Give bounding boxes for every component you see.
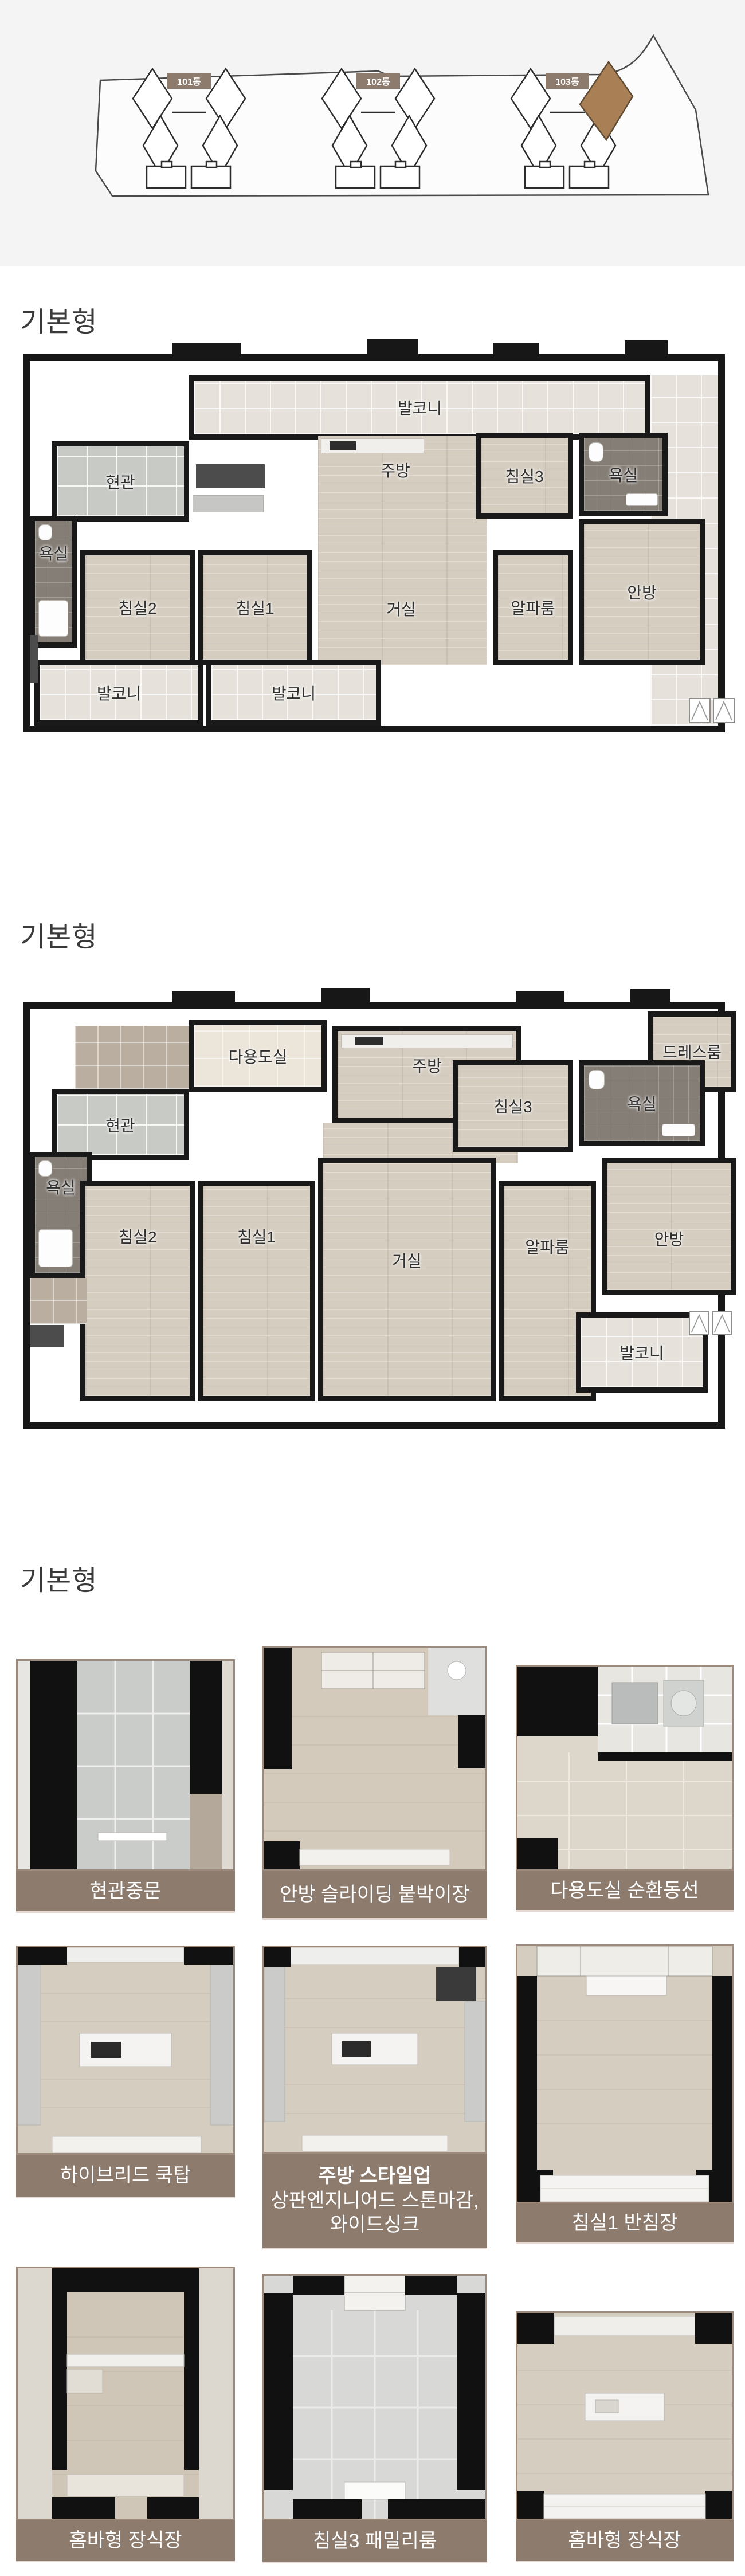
room-label: 현관	[105, 470, 135, 493]
plan1-bath-master: 욕실	[579, 433, 668, 516]
duct	[30, 1325, 64, 1347]
washbasin	[38, 1160, 52, 1177]
section-title-2: 기본형	[20, 914, 97, 954]
toilet	[589, 1070, 605, 1089]
gallery-tile-bedroom1-closet: 침실1 반침장	[516, 1944, 734, 2242]
tile-caption: 안방 슬라이딩 붙박이장	[262, 1871, 487, 1918]
building-label-102: 102동	[356, 73, 400, 89]
room-label: 침실2	[118, 596, 156, 619]
tile-caption-line2: 상판엔지니어드 스톤마감,	[262, 2189, 487, 2213]
sink-counter	[626, 493, 658, 506]
tile-caption-text: 현관중문	[16, 1879, 235, 1904]
tile-caption-text: 홈바형 장식장	[516, 2528, 734, 2553]
plan2-bath-master: 욕실	[579, 1060, 705, 1146]
room-label: 거실	[392, 1249, 422, 1272]
sink-counter	[662, 1124, 695, 1136]
tile-caption-line3: 와이드싱크	[262, 2213, 487, 2237]
room-label: 다용도실	[228, 1045, 287, 1068]
plan2-bedroom2: 침실2	[80, 1181, 195, 1401]
room-label: 욕실	[609, 463, 638, 486]
plan1-bedroom3: 침실3	[476, 433, 573, 519]
cabinet	[193, 495, 264, 512]
room-label: 욕실	[627, 1092, 657, 1115]
plan1-wall-jut	[367, 339, 418, 355]
site-plan: 101동 102동 103동	[69, 16, 739, 245]
plan2-entrance: 현관	[52, 1089, 189, 1160]
tile-caption-text: 침실1 반침장	[516, 2211, 734, 2236]
room-label: 침실3	[493, 1095, 532, 1118]
tile-image-hybrid-cooktop	[16, 1946, 235, 2155]
tile-image-homebar-left	[16, 2267, 235, 2520]
building-label-102-text: 102동	[366, 77, 390, 87]
room-label: 발코니	[398, 396, 442, 419]
window-symbol	[689, 698, 711, 723]
plan1-master-bedroom: 안방	[579, 519, 705, 665]
gallery-tile-homebar-left: 홈바형 장식장	[16, 2267, 235, 2561]
plan1-bath-common: 욕실	[30, 516, 77, 648]
plan1-alpha-room: 알파룸	[493, 550, 573, 665]
room-label: 현관	[105, 1113, 135, 1136]
room-label: 욕실	[39, 542, 69, 564]
tile-image-bedroom3-familyroom	[262, 2274, 487, 2520]
tile-image-entrance-door	[16, 1659, 235, 1871]
plan2-elevator-hall	[74, 1026, 189, 1089]
tile-caption-text: 침실3 패밀리룸	[262, 2529, 487, 2554]
room-label: 안방	[654, 1227, 684, 1250]
section-title-1: 기본형	[20, 299, 97, 339]
room-label: 주방	[381, 458, 410, 481]
plan1-wall-jut	[172, 343, 241, 355]
cooktop	[330, 441, 356, 450]
tile-caption: 주방 스타일업 상판엔지니어드 스톤마감, 와이드싱크	[262, 2154, 487, 2248]
plan1-balcony-bottom-left: 발코니	[34, 660, 203, 726]
tile-image-master-closet	[262, 1646, 487, 1871]
room-label: 침실3	[505, 464, 543, 487]
tile-caption: 하이브리드 쿡탑	[16, 2155, 235, 2197]
room-label: 드레스룸	[662, 1040, 722, 1063]
tile-caption: 홈바형 장식장	[16, 2520, 235, 2561]
tile-image-bedroom1-closet	[516, 1944, 734, 2203]
plan2-utility-corner	[30, 1278, 87, 1324]
window-symbol	[713, 698, 735, 723]
cooktop	[355, 1037, 383, 1045]
tile-caption-title: 주방 스타일업	[262, 2164, 487, 2189]
floor-plan-basic-2: 다용도실 주방 드레스룸 현관 욕실 침실3 욕실 침실2	[23, 1002, 725, 1429]
tile-image-kitchen-styleup	[262, 1946, 487, 2154]
gallery-tile-master-closet: 안방 슬라이딩 붙박이장	[262, 1646, 487, 1918]
window-symbol	[689, 1311, 709, 1335]
tile-caption: 다용도실 순환동선	[516, 1871, 734, 1910]
building-label-101-text: 101동	[177, 77, 201, 87]
room-label: 침실1	[237, 1225, 276, 1248]
plan2-master-bedroom: 안방	[602, 1158, 736, 1295]
room-label: 침실1	[236, 596, 274, 619]
duct	[30, 635, 38, 683]
plan1-wall-jut	[625, 340, 668, 355]
room-label: 주방	[412, 1054, 442, 1077]
tile-caption: 침실1 반침장	[516, 2203, 734, 2242]
section-title-3: 기본형	[20, 1558, 97, 1598]
plan1-bedroom2: 침실2	[80, 550, 195, 665]
building-label-103: 103동	[546, 73, 589, 89]
plan1-balcony-bottom-center: 발코니	[206, 660, 381, 726]
gallery-tile-utility-flow: 다용도실 순환동선	[516, 1665, 734, 1910]
plan2-bedroom3: 침실3	[453, 1060, 573, 1152]
tile-image-utility-flow	[516, 1665, 734, 1871]
window-symbol	[712, 1311, 732, 1335]
room-label: 안방	[627, 581, 657, 603]
plan2-balcony: 발코니	[576, 1312, 708, 1393]
plan1-bedroom1: 침실1	[198, 550, 312, 665]
tile-caption-text: 홈바형 장식장	[16, 2528, 235, 2553]
room-label: 알파룸	[511, 596, 555, 619]
wardrobe	[196, 464, 265, 488]
plan1-entrance: 현관	[52, 441, 189, 522]
room-label: 욕실	[46, 1175, 76, 1198]
plan2-bedroom1: 침실1	[198, 1181, 315, 1401]
floor-plan-basic-1: 발코니 현관 주방 거실 침실3 욕실 욕실 침실2	[23, 354, 725, 732]
plan1-balcony-top: 발코니	[189, 375, 650, 440]
tile-caption-text: 하이브리드 쿡탑	[16, 2163, 235, 2188]
gallery-tile-entrance-door: 현관중문	[16, 1659, 235, 1911]
gallery-tile-hybrid-cooktop: 하이브리드 쿡탑	[16, 1946, 235, 2197]
toilet	[589, 442, 603, 462]
room-label: 발코니	[97, 681, 141, 704]
tile-caption: 현관중문	[16, 1871, 235, 1911]
building-label-101: 101동	[167, 73, 211, 89]
tile-caption-text: 다용도실 순환동선	[516, 1879, 734, 1903]
building-label-103-text: 103동	[555, 77, 579, 87]
page: 101동 102동 103동 기본형 기본형 기본형 발코니 현관 주방 거실	[0, 0, 745, 2576]
tile-caption: 침실3 패밀리룸	[262, 2520, 487, 2562]
gallery-tile-bedroom3-familyroom: 침실3 패밀리룸	[262, 2274, 487, 2562]
plan1-wall-jut	[493, 343, 539, 355]
plan2-utility-room: 다용도실	[189, 1020, 327, 1092]
bathtub	[38, 1229, 73, 1267]
tile-caption: 홈바형 장식장	[516, 2520, 734, 2561]
gallery-tile-kitchen-styleup: 주방 스타일업 상판엔지니어드 스톤마감, 와이드싱크	[262, 1946, 487, 2248]
bathtub	[38, 600, 68, 637]
room-label: 침실2	[118, 1225, 156, 1248]
gallery-tile-homebar-right: 홈바형 장식장	[516, 2311, 734, 2561]
room-label: 발코니	[272, 681, 316, 704]
tile-caption-text: 안방 슬라이딩 붙박이장	[262, 1883, 487, 1907]
plan2-living-room: 거실	[318, 1158, 496, 1401]
tile-image-homebar-right	[516, 2311, 734, 2520]
room-label: 알파룸	[525, 1235, 569, 1258]
plan1-living-kitchen: 주방 거실	[318, 436, 487, 665]
room-label: 거실	[386, 597, 416, 620]
room-label: 발코니	[619, 1341, 664, 1364]
washbasin	[38, 524, 52, 540]
